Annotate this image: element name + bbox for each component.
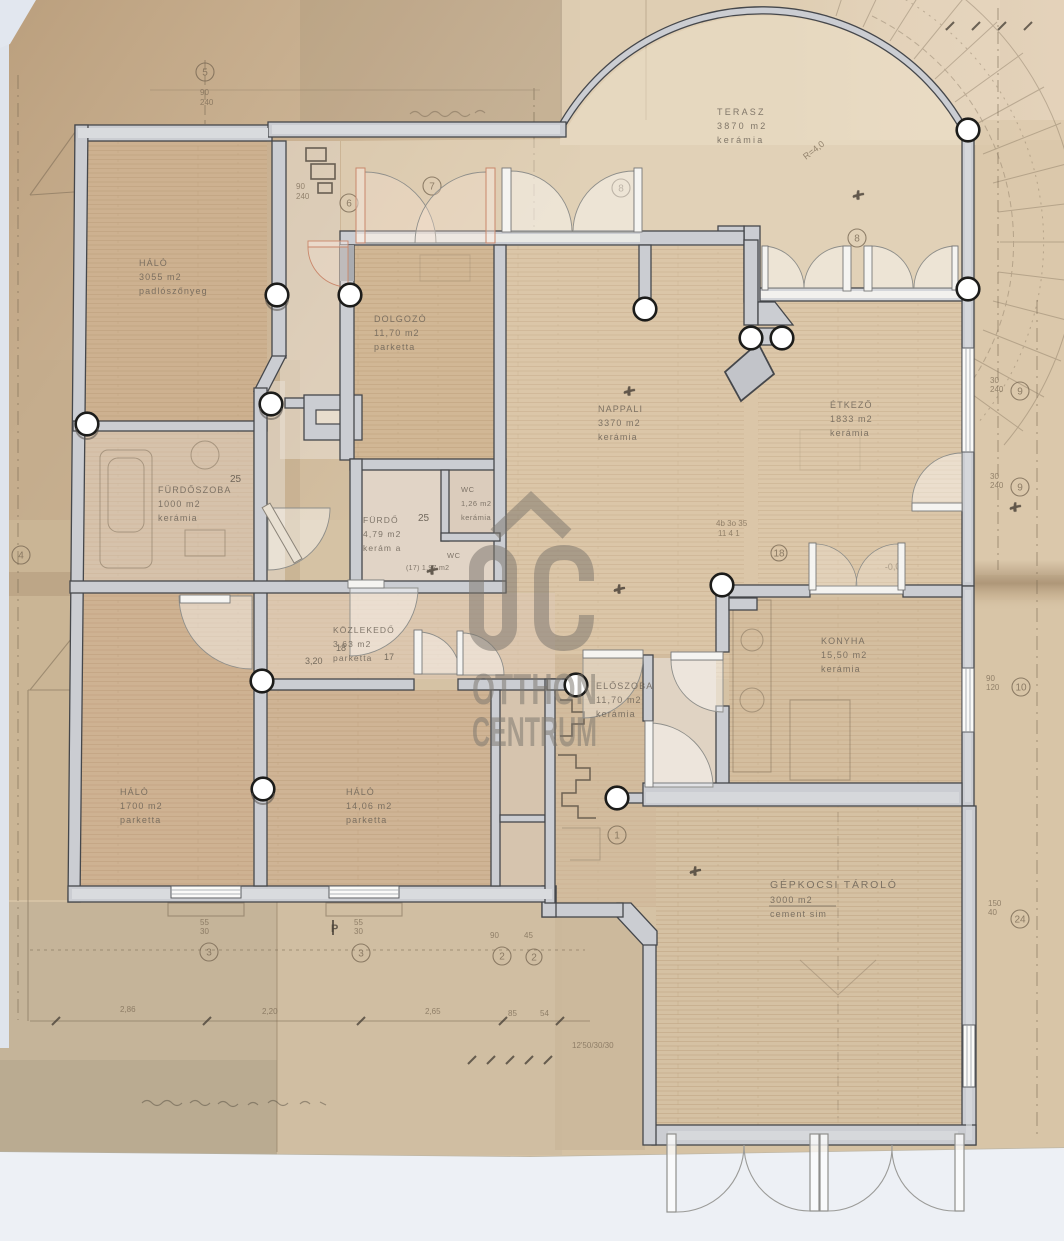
svg-text:parketta: parketta (346, 815, 387, 825)
svg-text:TERASZ: TERASZ (717, 107, 766, 117)
svg-text:GÉPKOCSI TÁROLÓ: GÉPKOCSI TÁROLÓ (770, 878, 898, 891)
svg-text:ELŐSZOBA: ELŐSZOBA (596, 681, 653, 691)
svg-text:1700 m2: 1700 m2 (120, 801, 163, 811)
svg-text:kerámia: kerámia (461, 513, 492, 522)
svg-text:2,20: 2,20 (262, 1007, 278, 1016)
svg-text:120: 120 (986, 683, 1000, 692)
svg-text:kerámia: kerámia (830, 428, 870, 438)
svg-text:2,65: 2,65 (425, 1007, 441, 1016)
svg-text:240: 240 (990, 385, 1004, 394)
svg-text:15,50 m2: 15,50 m2 (821, 650, 867, 660)
svg-text:2,86: 2,86 (120, 1005, 136, 1014)
svg-text:1: 1 (614, 831, 620, 842)
svg-text:12'50/30/30: 12'50/30/30 (572, 1041, 614, 1050)
svg-text:3: 3 (206, 948, 212, 959)
svg-text:40: 40 (988, 908, 997, 917)
svg-text:24: 24 (1014, 915, 1026, 926)
svg-text:3,20: 3,20 (305, 656, 323, 666)
svg-text:150: 150 (988, 899, 1002, 908)
svg-text:17: 17 (384, 652, 394, 662)
svg-text:HÁLÓ: HÁLÓ (139, 258, 168, 268)
svg-text:P: P (331, 923, 338, 935)
svg-text:(17) 1,97 m2: (17) 1,97 m2 (406, 565, 449, 572)
svg-text:HÁLÓ: HÁLÓ (120, 787, 149, 797)
svg-text:kerámia: kerámia (596, 709, 636, 719)
svg-text:kerámia: kerámia (821, 664, 861, 674)
svg-text:OTTHON: OTTHON (472, 665, 597, 714)
svg-text:3: 3 (358, 949, 364, 960)
svg-text:ÉTKEZŐ: ÉTKEZŐ (830, 400, 873, 410)
svg-text:9: 9 (1017, 483, 1023, 494)
svg-text:1000 m2: 1000 m2 (158, 499, 201, 509)
svg-text:11 4 1: 11 4 1 (718, 529, 740, 538)
svg-text:3870 m2: 3870 m2 (717, 121, 767, 131)
svg-text:30: 30 (990, 376, 999, 385)
svg-text:HÁLÓ: HÁLÓ (346, 787, 375, 797)
svg-text:parketta: parketta (333, 653, 373, 663)
svg-text:55: 55 (354, 918, 363, 927)
svg-text:2: 2 (531, 953, 537, 964)
svg-text:55: 55 (200, 918, 209, 927)
svg-text:85: 85 (508, 1009, 517, 1018)
svg-text:240: 240 (200, 98, 214, 107)
svg-text:KÖZLEKEDŐ: KÖZLEKEDŐ (333, 625, 395, 635)
svg-text:6: 6 (346, 199, 352, 210)
svg-text:4: 4 (18, 551, 24, 562)
svg-text:90: 90 (200, 88, 209, 97)
svg-text:11,70 m2: 11,70 m2 (596, 695, 642, 705)
svg-text:90: 90 (490, 931, 499, 940)
svg-text:kerámia: kerámia (158, 513, 198, 523)
svg-text:3000 m2: 3000 m2 (770, 895, 813, 905)
svg-text:5: 5 (202, 68, 208, 79)
svg-text:90: 90 (986, 674, 995, 683)
svg-text:18: 18 (773, 549, 785, 560)
svg-text:4,79 m2: 4,79 m2 (363, 529, 401, 539)
svg-text:NAPPALI: NAPPALI (598, 404, 643, 414)
svg-text:25: 25 (230, 474, 242, 485)
svg-text:WC: WC (461, 485, 475, 494)
svg-text:parketta: parketta (120, 815, 161, 825)
svg-text:CENTRUM: CENTRUM (472, 708, 597, 755)
svg-text:30: 30 (200, 927, 209, 936)
svg-text:25: 25 (418, 513, 430, 524)
svg-text:kerámia: kerámia (717, 135, 764, 145)
svg-text:10: 10 (1015, 683, 1027, 694)
svg-text:parketta: parketta (374, 342, 415, 352)
svg-text:14,06 m2: 14,06 m2 (346, 801, 392, 811)
svg-text:1833 m2: 1833 m2 (830, 414, 873, 424)
svg-text:240: 240 (296, 192, 310, 201)
svg-text:1,26 m2: 1,26 m2 (461, 499, 492, 508)
svg-text:8: 8 (854, 234, 860, 245)
svg-text:WC: WC (447, 551, 461, 560)
svg-text:18: 18 (336, 643, 346, 653)
svg-text:45: 45 (524, 931, 533, 940)
svg-text:9: 9 (1017, 387, 1023, 398)
svg-text:FÜRDŐSZOBA: FÜRDŐSZOBA (158, 485, 232, 495)
svg-text:90: 90 (296, 182, 305, 191)
svg-text:FÜRDŐ: FÜRDŐ (363, 515, 399, 525)
svg-text:54: 54 (540, 1009, 549, 1018)
svg-text:padlószőnyeg: padlószőnyeg (139, 286, 208, 296)
svg-text:30: 30 (354, 927, 363, 936)
svg-text:KONYHA: KONYHA (821, 636, 866, 646)
svg-text:4b 3o 35: 4b 3o 35 (716, 519, 748, 528)
svg-text:240: 240 (990, 481, 1004, 490)
svg-text:kerámia: kerámia (598, 432, 638, 442)
svg-text:2: 2 (499, 952, 505, 963)
svg-text:7: 7 (429, 182, 435, 193)
svg-text:3370 m2: 3370 m2 (598, 418, 641, 428)
svg-text:kerám a: kerám a (363, 543, 401, 553)
svg-text:3055 m2: 3055 m2 (139, 272, 182, 282)
svg-text:30: 30 (990, 472, 999, 481)
svg-text:cement sim: cement sim (770, 909, 827, 919)
svg-text:DOLGOZÓ: DOLGOZÓ (374, 314, 427, 324)
svg-text:11,70 m2: 11,70 m2 (374, 328, 420, 338)
